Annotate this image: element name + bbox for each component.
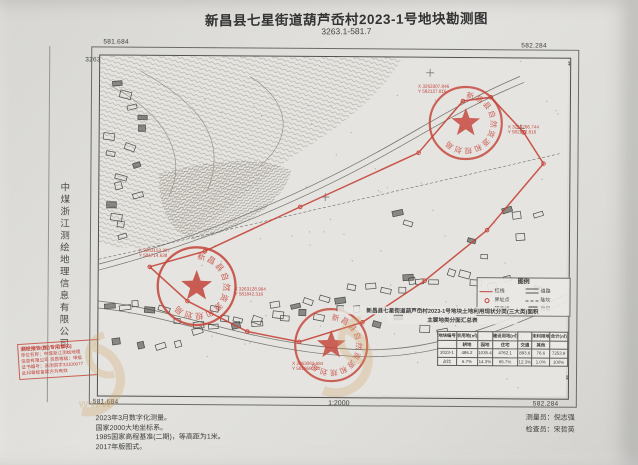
slope-symbol xyxy=(526,300,539,301)
surveyor-name: 测量员：倪志强 xyxy=(526,412,575,424)
area-table-cell: 合计(㎡) xyxy=(550,332,567,341)
legend-item: 界址点 xyxy=(480,295,522,304)
legend-label: 红线 xyxy=(495,287,505,294)
area-table-cell: 占比 xyxy=(438,357,457,366)
area-table-cell: 建设用地(㎡) xyxy=(492,332,518,341)
area-table-cell: 未利用地 xyxy=(532,332,551,341)
area-table-cell: 12.3% xyxy=(518,358,532,367)
area-table-cell: 住宅 xyxy=(492,340,518,349)
area-table-cell: 园地 xyxy=(478,340,492,349)
grid-coord-bottom-left-easting: 581.684 xyxy=(93,398,119,405)
coordinate-annotation: X 3263307.846Y 582127.816 xyxy=(418,84,449,95)
area-table-cell: 其他 xyxy=(532,341,551,350)
area-table-cell: 6.7% xyxy=(456,357,478,366)
area-table-cell: 14.3% xyxy=(478,357,492,366)
area-table-cell: 7253.9 xyxy=(550,349,567,358)
legend-item: 道路 xyxy=(526,286,568,295)
area-table-cell: 893.6 xyxy=(518,349,532,358)
scanned-survey-photo: 新昌县七星街道葫芦岙村2023-1号地块勘测图 3263.1-581.7 中煤浙… xyxy=(0,0,638,465)
dot-symbol xyxy=(480,297,493,302)
area-table-cell: 486.2 xyxy=(456,349,478,358)
area-table-cell: 1.0% xyxy=(531,358,550,367)
grid-coord-top-right-easting: 582.284 xyxy=(521,42,547,49)
surveying-company-name: 中煤浙江测绘地理信息有限公司 xyxy=(55,182,70,357)
road-symbol xyxy=(526,288,539,293)
map-scale: 1:2000 xyxy=(299,400,379,408)
map-notes: 2023年3月数字化测量。 国家2000大地坐标系。 1985国家高程基准(二期… xyxy=(96,414,225,452)
checker-name: 检查员：宋哲英 xyxy=(526,424,575,436)
area-table-cell: 100% xyxy=(550,358,567,367)
grid-coord-bottom-right-easting: 582.284 xyxy=(533,400,559,407)
area-table-cell: 1035.4 xyxy=(478,349,492,358)
area-table-cell: 交通 xyxy=(518,340,532,349)
area-table-cell: 65.7% xyxy=(492,357,518,366)
area-table-cell: 农用地(㎡) xyxy=(456,331,478,340)
area-table-cell: 4762.1 xyxy=(492,349,518,358)
area-table-cell: 地块编号 xyxy=(438,331,457,340)
area-table-title: 新昌县七星街道葫芦岙村2023-1号地块土地利用现状分类(三大类)面积 xyxy=(337,306,567,316)
area-table-cell: 耕地 xyxy=(456,340,478,349)
legend-label: 陡坎 xyxy=(541,297,551,304)
legend-label: 界址点 xyxy=(495,296,510,303)
area-table-cell xyxy=(438,340,457,349)
redline-symbol xyxy=(480,291,493,292)
legend-item: 陡坎 xyxy=(526,295,568,304)
legend-label: 道路 xyxy=(541,288,551,295)
staff-signatures: 测量员：倪志强 检查员：宋哲英 xyxy=(526,412,575,436)
area-table-subtitle: 主要地类分面汇总表 xyxy=(387,315,517,324)
area-table-cell xyxy=(478,332,492,341)
area-table-cell: 2023-1 xyxy=(438,349,457,358)
coordinate-annotation: X 3263153.207Y 581714.638 xyxy=(139,248,170,259)
legend-item: 红线 xyxy=(480,286,522,295)
survey-sheet: 新昌县七星街道葫芦岙村2023-1号地块勘测图 3263.1-581.7 中煤浙… xyxy=(0,0,638,465)
coordinate-annotation: X 3263128.964Y 581842.316 xyxy=(235,286,266,297)
coordinate-annotation: X 3263062.584Y 581958.722 xyxy=(292,361,323,372)
grid-coord-top-left-easting: 581.684 xyxy=(103,38,129,45)
area-table-cell xyxy=(550,341,567,350)
area-table-cell: 76.6 xyxy=(531,349,550,358)
area-table: 地块编号农用地(㎡)建设用地(㎡)未利用地合计(㎡)耕地园地住宅交通其他2023… xyxy=(437,331,568,367)
area-table-cell xyxy=(518,332,532,341)
coordinate-annotation: X 3263266.744Y 582172.816 xyxy=(508,124,539,135)
